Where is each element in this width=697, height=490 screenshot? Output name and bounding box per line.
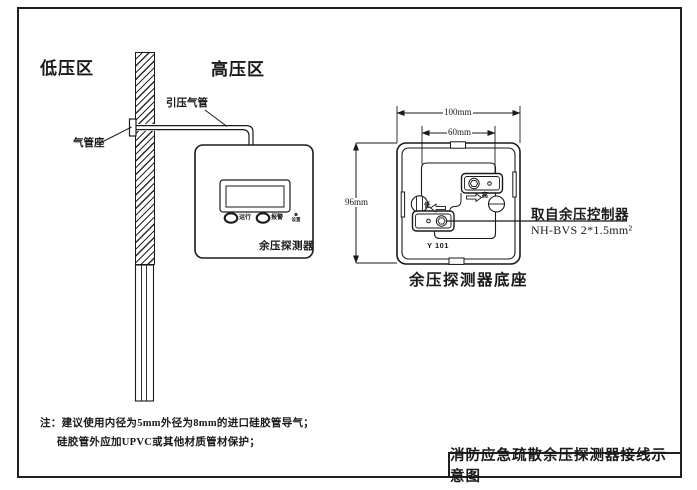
- wiring-diagram-sheet: 低压区 高压区 引压气管 气管座 运行 报警 设置 余压探测器 100mm 60…: [0, 0, 697, 490]
- dimension-100mm-label: 100mm: [443, 108, 473, 117]
- set-button-label: 设置: [292, 218, 301, 223]
- low-port-label: 低: [424, 203, 431, 210]
- base-caption: 余压探测器底座: [409, 273, 528, 289]
- detector-name-label: 余压探测器: [259, 242, 314, 253]
- alarm-indicator-label: 报警: [271, 215, 283, 221]
- wall-lower-section: [136, 265, 154, 401]
- run-indicator-label: 运行: [239, 215, 251, 221]
- low-pressure-zone-label: 低压区: [40, 60, 94, 77]
- base-bottom-tab: [449, 258, 464, 264]
- base-model-label: Y 101: [427, 242, 449, 250]
- terminal-block-top: [462, 174, 503, 194]
- high-pressure-zone-label: 高压区: [211, 61, 265, 78]
- base-right-latch-mark: [513, 172, 516, 197]
- wiring-source-label: 取自余压控制器: [531, 208, 629, 222]
- dimension-60mm-label: 60mm: [447, 128, 472, 137]
- pipe-seat-leader-line: [102, 127, 132, 142]
- high-port-label: 高: [482, 193, 489, 200]
- sheet-title: 消防应急疏散余压探测器接线示意图: [450, 444, 680, 486]
- pipe-casing: [136, 128, 251, 148]
- right-mounting-hole: [489, 196, 505, 212]
- base-left-latch-mark: [401, 192, 404, 217]
- set-button: [294, 213, 297, 216]
- note-prefix: 注：: [40, 418, 62, 429]
- pipe-seat-label: 气管座: [73, 139, 105, 150]
- pressure-pipe-label: 引压气管: [166, 99, 208, 110]
- dimension-96mm-label: 96mm: [344, 198, 369, 207]
- note-line-1: 注：建议使用内径为5mm外径为8mm的进口硅胶管导气；: [40, 419, 314, 430]
- title-block: 消防应急疏散余压探测器接线示意图: [448, 452, 682, 478]
- diagram-linework: [0, 0, 697, 490]
- base-top-tab: [451, 142, 466, 148]
- cable-spec-label: NH-BVS 2*1.5mm²: [531, 224, 632, 236]
- note-line-2: 硅胶管外应加UPVC或其他材质管材保护；: [57, 438, 260, 449]
